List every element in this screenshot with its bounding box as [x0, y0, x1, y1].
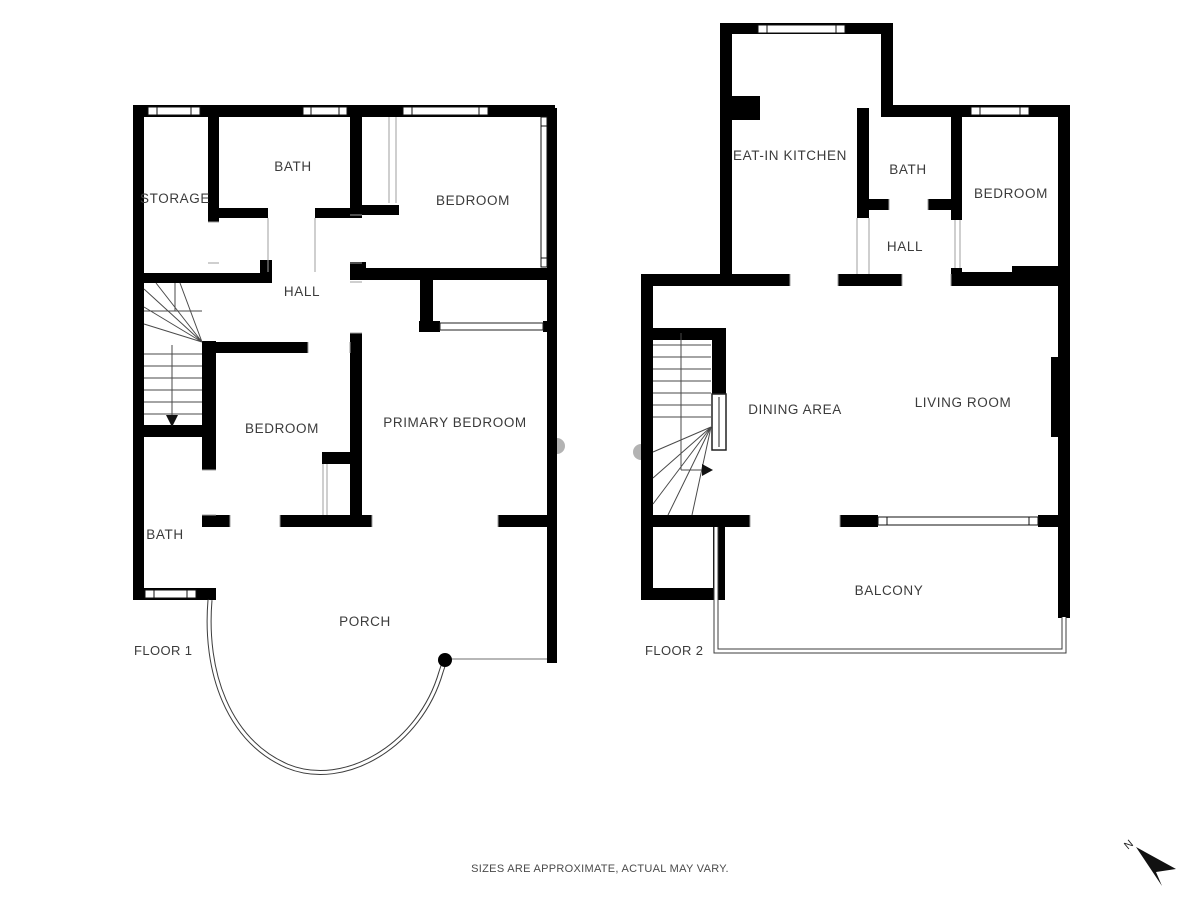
floor-1-labels: STORAGE BATH BEDROOM HALL BEDROOM PRIMAR… [134, 159, 527, 658]
room-label-bedroom-middle: BEDROOM [245, 421, 319, 436]
floor-1-stairs [144, 283, 202, 427]
room-label-bath-lower: BATH [146, 527, 183, 542]
room-label-dining-area: DINING AREA [748, 402, 842, 417]
floor-1-plan: STORAGE BATH BEDROOM HALL BEDROOM PRIMAR… [133, 105, 565, 772]
floor-1-label: FLOOR 1 [134, 643, 192, 658]
north-indicator: N [1122, 838, 1176, 886]
bedroom-closet-partition [389, 117, 396, 203]
floor-1-walls [133, 105, 557, 663]
room-label-primary-bedroom: PRIMARY BEDROOM [383, 415, 527, 430]
window [303, 107, 347, 115]
window [971, 107, 1029, 115]
window [403, 107, 488, 115]
floor-2-door-jambs [750, 199, 960, 527]
room-label-bedroom-upper: BEDROOM [436, 193, 510, 208]
room-label-balcony: BALCONY [855, 583, 924, 598]
window [758, 25, 845, 33]
room-label-eat-in-kitchen: EAT-IN KITCHEN [733, 148, 847, 163]
floor-2-plan: EAT-IN KITCHEN BATH BEDROOM HALL DINING … [633, 23, 1070, 658]
room-label-bath-upper: BATH [274, 159, 311, 174]
north-label: N [1122, 838, 1136, 852]
floorplan-canvas: STORAGE BATH BEDROOM HALL BEDROOM PRIMAR… [0, 0, 1200, 900]
porch-column [438, 653, 452, 667]
window [148, 107, 200, 115]
room-label-storage: STORAGE [140, 191, 210, 206]
room-label-living-room: LIVING ROOM [915, 395, 1012, 410]
porch-railing [209, 600, 444, 772]
floor-2-labels: EAT-IN KITCHEN BATH BEDROOM HALL DINING … [645, 148, 1048, 658]
window [145, 590, 196, 598]
window [878, 517, 1038, 525]
floor-2-label: FLOOR 2 [645, 643, 703, 658]
room-label-hall: HALL [887, 239, 923, 254]
closet-sliding-door [440, 323, 543, 330]
room-label-hall: HALL [284, 284, 320, 299]
stair-direction-arrow [702, 464, 713, 476]
room-label-porch: PORCH [339, 614, 391, 629]
floorplan-page: STORAGE BATH BEDROOM HALL BEDROOM PRIMAR… [0, 0, 1200, 900]
disclaimer-text: SIZES ARE APPROXIMATE, ACTUAL MAY VARY. [471, 863, 729, 875]
room-label-bedroom: BEDROOM [974, 186, 1048, 201]
north-arrow-icon [1136, 847, 1176, 886]
room-label-bath: BATH [889, 162, 926, 177]
window [541, 117, 547, 267]
